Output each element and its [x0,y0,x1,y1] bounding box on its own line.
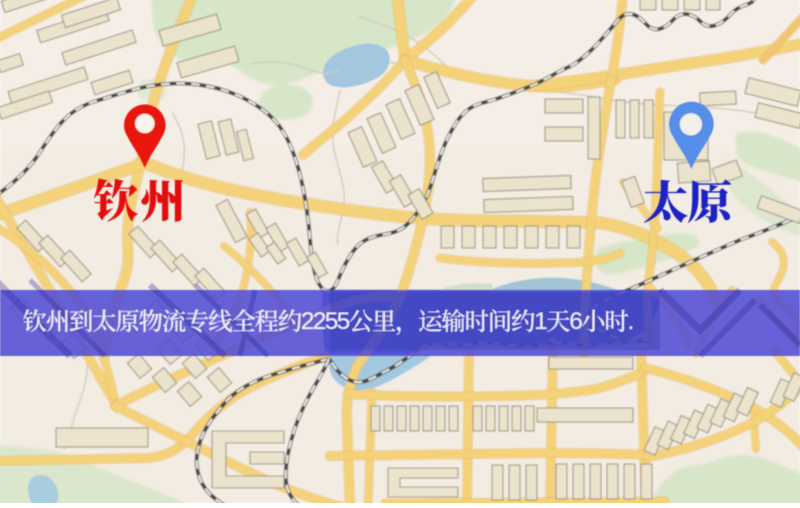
svg-text:5: 5 [337,308,351,335]
svg-text:1: 1 [534,308,548,335]
svg-text:6: 6 [569,308,583,335]
svg-text:.: . [628,308,635,335]
